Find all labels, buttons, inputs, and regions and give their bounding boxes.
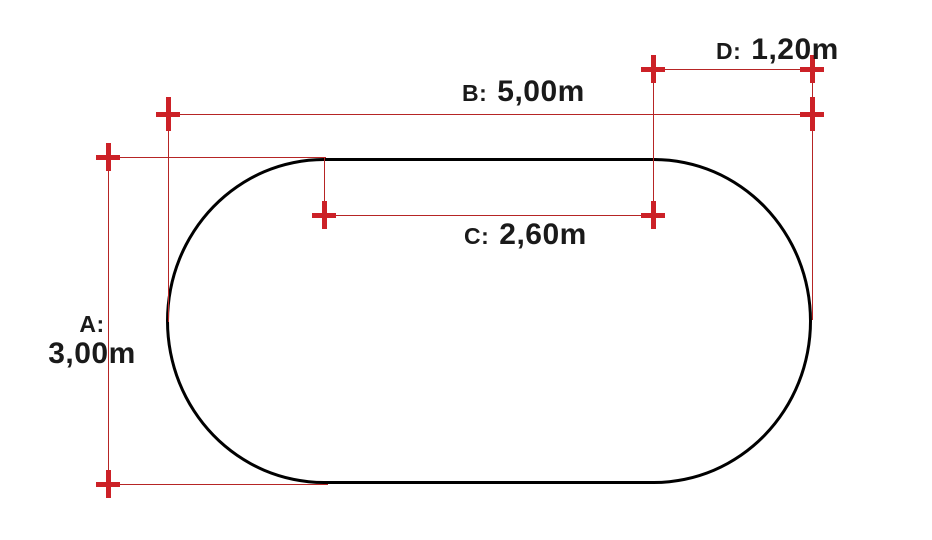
extension-line-b-left: [168, 100, 169, 322]
diagram-canvas: A: 3,00m B: 5,00m C: 2,60m D: 1,20m: [0, 0, 932, 540]
dimension-letter-d: D:: [716, 38, 741, 65]
dimension-value-d: 1,20m: [751, 33, 839, 67]
dimension-label-c: C: 2,60m: [464, 218, 587, 252]
dimension-value-c: 2,60m: [499, 218, 587, 252]
cross-marker-b-right: [800, 97, 824, 131]
cross-marker-a-top: [96, 143, 120, 171]
extension-line-c-d: [653, 69, 654, 215]
dimension-label-b: B: 5,00m: [462, 75, 585, 109]
dimension-line-d: [653, 69, 812, 70]
dimension-label-a: A: 3,00m: [36, 310, 148, 370]
cross-marker-c-left: [312, 201, 336, 229]
dimension-letter-b: B:: [462, 80, 487, 107]
dimension-label-d: D: 1,20m: [716, 33, 839, 67]
cross-marker-b-left: [156, 97, 180, 131]
cross-marker-a-bottom: [96, 470, 120, 498]
stadium-shape-outline: [166, 158, 812, 484]
extension-line-a-top: [108, 157, 326, 158]
cross-marker-c-right: [641, 201, 665, 229]
dimension-letter-a: A:: [36, 310, 148, 338]
dimension-value-a: 3,00m: [36, 338, 148, 370]
dimension-value-b: 5,00m: [497, 75, 585, 109]
dimension-line-b: [168, 114, 812, 115]
dimension-line-c: [324, 215, 653, 216]
cross-marker-d-left: [641, 55, 665, 83]
dimension-letter-c: C:: [464, 223, 489, 250]
extension-line-a-bottom: [108, 484, 328, 485]
